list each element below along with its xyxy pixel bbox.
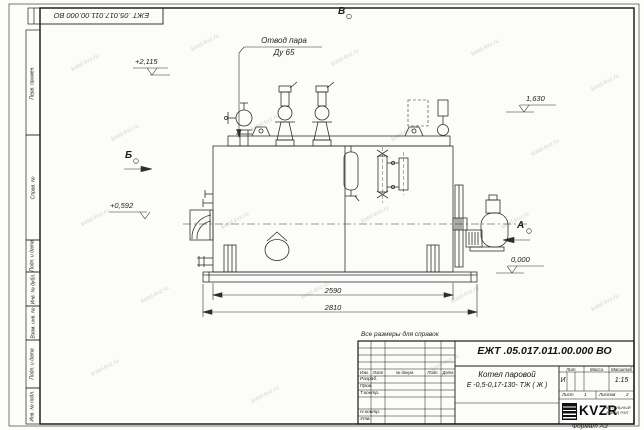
format-label: Формат А3 <box>572 423 608 430</box>
margin-stamp-podp-data-1: Подп. и дата <box>26 240 40 272</box>
steam-outlet-label-line1: Отвод пара <box>244 36 324 45</box>
sign-row-tkontr: Т.контр. <box>360 391 379 396</box>
sheet-frame <box>9 4 639 426</box>
lit-value: И <box>559 377 567 384</box>
view-label-v: В <box>338 6 345 17</box>
margin-stamp-label: Взам. инв. № <box>30 308 36 339</box>
dimension-2590: 2590 <box>313 286 353 295</box>
level-gauge <box>377 147 408 203</box>
dashed-outline <box>408 100 428 126</box>
margin-stamp-label: Инв. № подл. <box>30 390 36 421</box>
manhole <box>265 232 289 261</box>
pressure-gauge <box>438 100 449 136</box>
skid-base <box>203 245 477 282</box>
drawing-linework <box>0 0 644 430</box>
sheet-value: 1 <box>584 392 587 397</box>
col-podp: Подп. <box>425 370 441 375</box>
elevation-label-right-lower: 0,000 <box>511 255 530 264</box>
mass-label: Масса <box>584 367 609 372</box>
boiler-side-view <box>183 82 530 282</box>
company-name: КОТЕЛЬНЫЙ ЗАВОД РЭП <box>606 405 631 415</box>
scale-label: Масштаб <box>609 367 634 372</box>
margin-stamp-sprav-n: Справ. № <box>26 135 40 240</box>
company-name-line2: ЗАВОД РЭП <box>606 410 631 415</box>
steam-outlet-label-line2: Ду 65 <box>244 48 324 57</box>
drawing-sheet: kotel-kvz.ru kotel-kvz.ru kotel-kvz.ru k… <box>0 0 644 430</box>
lit-label: Лит. <box>559 367 584 372</box>
burner <box>190 210 213 240</box>
sign-row-nkontr: Н.контр. <box>360 410 380 415</box>
reference-note: Все размеры для справок <box>361 331 439 338</box>
scale-value: 1:15 <box>609 377 634 384</box>
dimension-lines <box>109 14 556 317</box>
dimension-2810: 2810 <box>313 303 353 312</box>
col-list: Лист <box>371 370 385 375</box>
margin-stamp-inv-dubl: Инв. № дубл. <box>26 272 40 306</box>
margin-stamp-label: Инв. № дубл. <box>30 274 36 305</box>
elevation-label-right-upper: 1,630 <box>526 94 545 103</box>
view-label-b: Б <box>125 150 132 161</box>
col-izm: Изм. <box>358 370 371 375</box>
water-column <box>344 146 359 201</box>
margin-stamp-vzam-inv: Взам. инв. № <box>26 306 40 340</box>
sign-row-razrab: Разраб. <box>360 377 377 382</box>
title-designation: ЕЖТ .05.017.011.00.000 ВО <box>455 345 634 357</box>
margin-stamp-inv-podl: Инв. № подл. <box>26 388 40 424</box>
margin-stamp-label: Подп. и дата <box>30 240 36 271</box>
elevation-label-left: +0,592 <box>110 201 133 210</box>
col-data: Дата <box>441 370 455 375</box>
product-name-line2: Е -0,5-0,17-130- ТЖ ( Ж ) <box>455 382 559 389</box>
sheets-label: Листов <box>599 392 615 397</box>
lifting-lug <box>405 127 423 136</box>
elevation-label-top: +2,115 <box>135 57 158 66</box>
sheets-value: 2 <box>626 392 629 397</box>
sign-row-prov: Пров. <box>360 384 373 389</box>
margin-stamp-podp-data-2: Подп. и дата <box>26 340 40 388</box>
feed-pump <box>453 185 508 267</box>
margin-stamp-perv-primen: Перв. примен. <box>26 30 40 135</box>
sheet-label: Лист <box>562 392 574 397</box>
sign-row-utv: Утв. <box>360 417 371 422</box>
col-dokum: № докум. <box>385 370 425 375</box>
product-name-line1: Котел паровой <box>455 370 559 379</box>
margin-stamp-label: Перв. примен. <box>30 66 36 99</box>
view-label-a: А <box>517 220 524 231</box>
corner-stamp-designation: ЕЖТ .05.017.011.00.000 ВО <box>40 8 163 24</box>
margin-stamp-label: Справ. № <box>30 176 36 199</box>
lifting-lug <box>252 127 270 136</box>
steam-valve <box>225 103 253 146</box>
kvzr-logo-icon <box>562 403 577 420</box>
margin-stamp-label: Подп. и дата <box>30 348 36 379</box>
